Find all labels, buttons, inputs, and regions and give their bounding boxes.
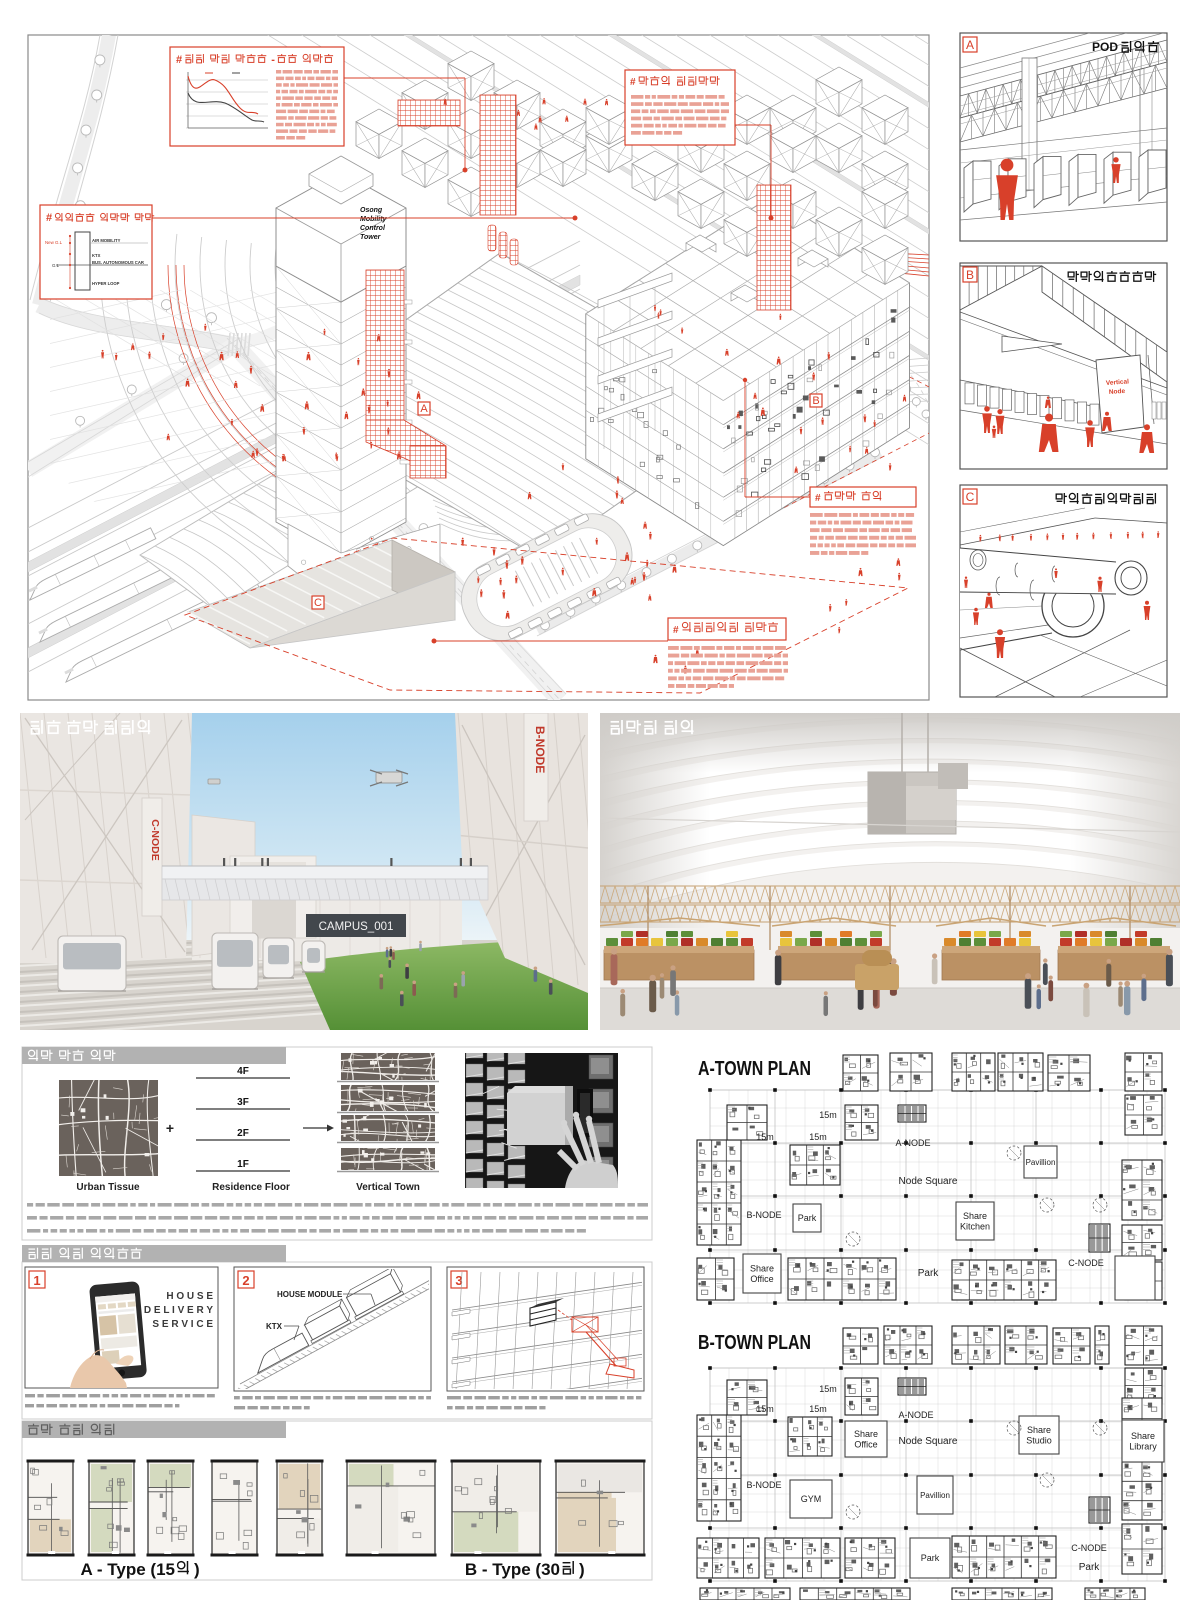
svg-text:Park: Park <box>1079 1562 1101 1573</box>
svg-text:B-NODE: B-NODE <box>746 1480 781 1490</box>
svg-text:Share: Share <box>963 1211 987 1221</box>
svg-text:Vertical Town: Vertical Town <box>356 1182 420 1193</box>
svg-text:New G.L: New G.L <box>45 240 63 245</box>
svg-text:BUS. AUTONOMOUS CAR: BUS. AUTONOMOUS CAR <box>92 260 144 265</box>
svg-text:15m: 15m <box>819 1110 837 1120</box>
svg-text:15m: 15m <box>819 1384 837 1394</box>
svg-text:KTX: KTX <box>266 1322 283 1331</box>
svg-text:): ) <box>579 1560 585 1579</box>
svg-text:Node: Node <box>1109 388 1126 396</box>
svg-text:Tower: Tower <box>360 234 382 241</box>
svg-text:GYM: GYM <box>801 1494 822 1504</box>
svg-text:15m: 15m <box>756 1132 774 1142</box>
svg-text:Pavillion: Pavillion <box>920 1491 950 1500</box>
svg-text:Node Square: Node Square <box>899 1176 958 1187</box>
svg-text:Kitchen: Kitchen <box>960 1221 990 1231</box>
svg-text:Park: Park <box>798 1213 817 1223</box>
svg-text:AIR MOBILITY: AIR MOBILITY <box>92 238 121 243</box>
svg-text:A: A <box>966 38 974 52</box>
svg-text:-: - <box>271 54 275 66</box>
svg-text:B: B <box>966 268 974 282</box>
svg-text:HOUSE MODULE: HOUSE MODULE <box>277 1290 343 1299</box>
svg-text:CAMPUS_001: CAMPUS_001 <box>319 921 394 933</box>
svg-text:KTX: KTX <box>92 253 101 258</box>
svg-text:Office: Office <box>750 1274 773 1284</box>
svg-text:15m: 15m <box>809 1132 827 1142</box>
svg-text:D E L I V E R Y: D E L I V E R Y <box>144 1305 213 1316</box>
svg-text:C-NODE: C-NODE <box>1071 1543 1107 1553</box>
svg-text:Share: Share <box>854 1429 878 1439</box>
svg-text:C: C <box>966 490 975 504</box>
svg-text:B: B <box>812 395 819 407</box>
svg-text:+: + <box>166 1120 174 1136</box>
svg-text:3F: 3F <box>237 1097 249 1108</box>
svg-text:1: 1 <box>33 1273 40 1288</box>
svg-text:2: 2 <box>242 1273 249 1288</box>
svg-text:G.L: G.L <box>52 263 60 268</box>
svg-text:B - Type (30: B - Type (30 <box>465 1560 560 1579</box>
svg-text:B-TOWN PLAN: B-TOWN PLAN <box>698 1332 811 1354</box>
svg-text:S E R V I C E: S E R V I C E <box>152 1319 213 1330</box>
svg-text:Park: Park <box>918 1268 940 1279</box>
svg-text:15m: 15m <box>809 1404 827 1414</box>
svg-text:Office: Office <box>854 1439 877 1449</box>
svg-text:Share: Share <box>1131 1431 1155 1441</box>
svg-text:Residence Floor: Residence Floor <box>212 1182 290 1193</box>
svg-text:C: C <box>314 597 322 609</box>
svg-text:#: # <box>673 625 679 636</box>
svg-text:C-NODE: C-NODE <box>1068 1258 1104 1268</box>
svg-text:POD: POD <box>1092 40 1118 54</box>
svg-text:Control: Control <box>360 225 386 232</box>
svg-text:Park: Park <box>921 1553 940 1563</box>
svg-text:A - Type (15: A - Type (15 <box>81 1560 175 1579</box>
svg-text:HYPER LOOP: HYPER LOOP <box>92 281 120 286</box>
svg-text:C-NODE: C-NODE <box>149 819 161 860</box>
svg-text:Osong: Osong <box>360 207 383 214</box>
svg-text:4F: 4F <box>237 1066 249 1077</box>
svg-text:Urban Tissue: Urban Tissue <box>76 1182 140 1193</box>
svg-text:1F: 1F <box>237 1159 249 1170</box>
svg-text:Share: Share <box>1027 1425 1051 1435</box>
svg-text:B-NODE: B-NODE <box>746 1210 781 1220</box>
svg-text:Node Square: Node Square <box>899 1436 958 1447</box>
svg-text:H O U S E: H O U S E <box>166 1291 213 1302</box>
svg-text:Pavillion: Pavillion <box>1026 1158 1056 1167</box>
svg-text:Share: Share <box>750 1264 774 1274</box>
svg-text:Studio: Studio <box>1026 1435 1052 1445</box>
svg-text:2F: 2F <box>237 1128 249 1139</box>
svg-text:Library: Library <box>1129 1441 1157 1451</box>
svg-text:A: A <box>420 403 428 415</box>
svg-text:#: # <box>176 54 182 66</box>
svg-text:A-NODE: A-NODE <box>898 1410 933 1420</box>
svg-text:#: # <box>630 77 636 88</box>
svg-text:A-TOWN PLAN: A-TOWN PLAN <box>698 1058 811 1080</box>
svg-text:A-NODE: A-NODE <box>895 1138 930 1148</box>
svg-text:B-NODE: B-NODE <box>533 726 547 773</box>
svg-text:#: # <box>815 493 821 504</box>
svg-text:): ) <box>194 1560 200 1579</box>
svg-text:Mobility: Mobility <box>360 216 388 223</box>
svg-text:15m: 15m <box>756 1404 774 1414</box>
svg-text:#: # <box>46 212 52 224</box>
